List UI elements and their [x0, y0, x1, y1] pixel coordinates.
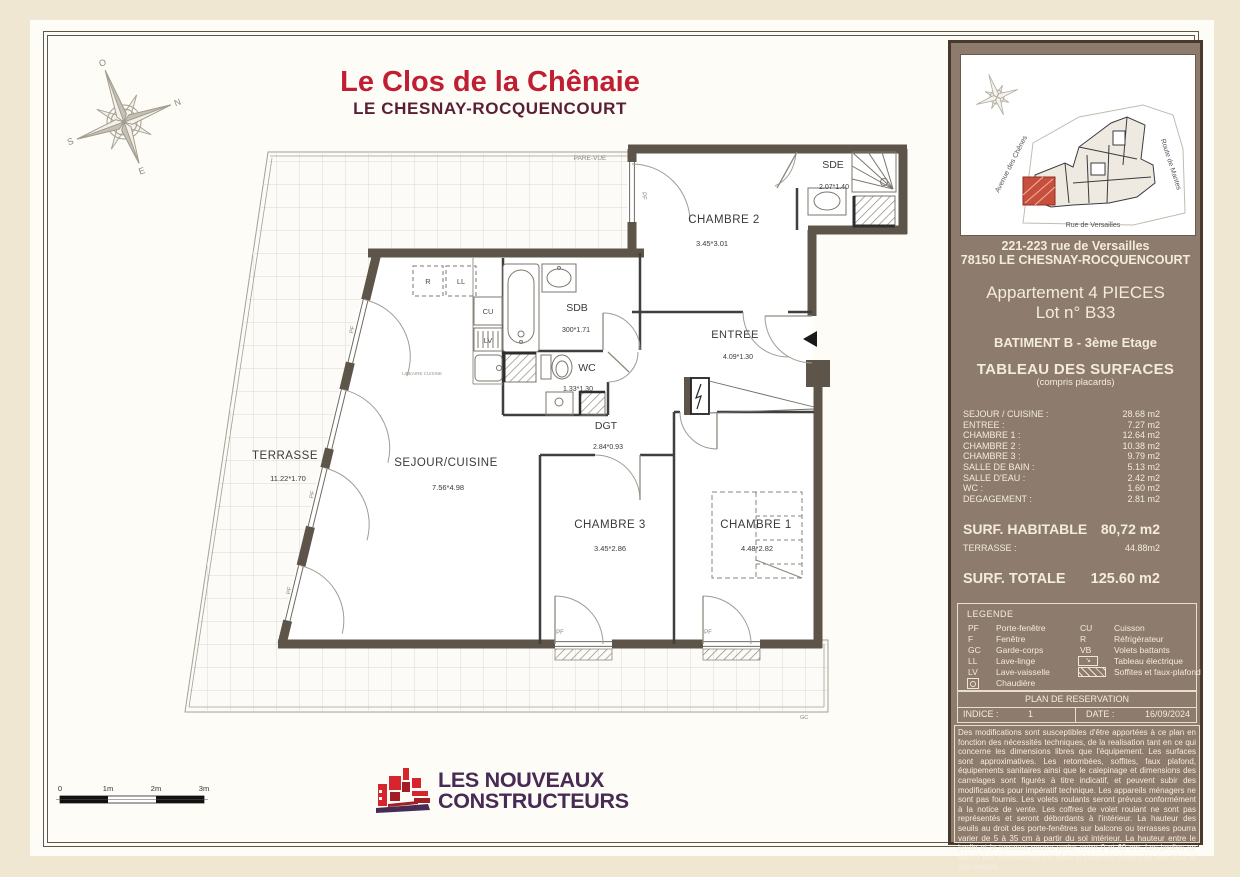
surface-label: DEGAGEMENT : — [963, 494, 1032, 505]
legend-abbr: R — [1080, 634, 1086, 644]
address-line2: 78150 LE CHESNAY-ROCQUENCOURT — [951, 253, 1200, 267]
legend-label: Lave-linge — [996, 656, 1035, 666]
indice-date-row: INDICE : 1 DATE : 16/09/2024 — [957, 707, 1197, 723]
legend-label: Porte-fenêtre — [996, 623, 1046, 633]
legend-abbr: GC — [968, 645, 981, 655]
surface-row: WC :1.60 m2 — [963, 483, 1160, 494]
date-cell: DATE : 16/09/2024 — [1076, 707, 1196, 722]
legend-abbr: F — [968, 634, 973, 644]
habitable-row: SURF. HABITABLE 80,72 m2 — [963, 521, 1160, 537]
room-dims-entree: 4.09*1.30 — [723, 354, 753, 361]
scale-3m: 3m — [199, 784, 209, 793]
legend-label: Chaudière — [996, 678, 1035, 688]
terrasse-row: TERRASSE : 44.88m2 — [963, 543, 1160, 553]
apartment-type: Appartement 4 PIECES — [951, 283, 1200, 303]
kitchen-note: LINEAIRE CUISINE — [402, 371, 442, 376]
legend-label: Volets battants — [1114, 645, 1170, 655]
habitable-value: 80,72 m2 — [1101, 521, 1160, 537]
surface-row: CHAMBRE 1 :12.64 m2 — [963, 430, 1160, 441]
pare-vue-label: PARE-VUE — [574, 155, 607, 162]
compass-east-label: E — [137, 165, 146, 176]
terrasse-label: TERRASSE : — [963, 543, 1017, 553]
legend-abbr: LV — [968, 667, 978, 677]
habitable-label: SURF. HABITABLE — [963, 521, 1087, 537]
building-floor: BATIMENT B - 3ème Etage — [951, 335, 1200, 350]
surface-label: ENTREE : — [963, 420, 1005, 431]
room-label-entree: ENTREE — [711, 329, 759, 341]
room-label-terrasse: TERRASSE — [252, 450, 318, 462]
totale-label: SURF. TOTALE — [963, 571, 1066, 587]
surface-value: 5.13 m2 — [1127, 462, 1160, 473]
room-dims-wc: 1.33*1.30 — [563, 386, 593, 393]
surface-value: 28.68 m2 — [1122, 409, 1160, 420]
boiler-icon — [967, 678, 979, 689]
logo-line1: LES NOUVEAUX — [438, 770, 629, 791]
room-dims-dgt: 2.84*0.93 — [593, 444, 623, 451]
surface-label: CHAMBRE 3 : — [963, 451, 1021, 462]
legend-label: Réfrigérateur — [1114, 634, 1164, 644]
pf-label-2: PF — [704, 630, 712, 636]
indice-value: 1 — [1028, 709, 1033, 719]
electrical-panel-icon: ↘ — [1078, 656, 1098, 666]
hatch-icon — [1078, 667, 1106, 677]
surface-value: 9.79 m2 — [1127, 451, 1160, 462]
surface-label: WC : — [963, 483, 983, 494]
surface-row: SEJOUR / CUISINE :28.68 m2 — [963, 409, 1160, 420]
cooktop-label: CU — [483, 307, 494, 316]
room-dims-sde: 2.07*1.40 — [819, 184, 849, 191]
apartment-block: Appartement 4 PIECES Lot n° B33 — [951, 283, 1200, 323]
surfaces-subtitle: (compris placards) — [951, 377, 1200, 388]
room-label-chambre1: CHAMBRE 1 — [720, 519, 792, 531]
surface-row: SALLE DE BAIN :5.13 m2 — [963, 462, 1160, 473]
room-dims-sejour: 7.56*4.98 — [432, 483, 464, 492]
highlighted-unit — [1023, 177, 1055, 205]
room-label-dgt: DGT — [595, 420, 618, 432]
surface-value: 2.42 m2 — [1127, 473, 1160, 484]
fridge-label: R — [425, 277, 431, 286]
surface-value: 1.60 m2 — [1127, 483, 1160, 494]
lot-number: Lot n° B33 — [951, 303, 1200, 323]
surface-value: 2.81 m2 — [1127, 494, 1160, 505]
disclaimer-text: Des modifications sont susceptibles d'êt… — [954, 725, 1200, 843]
dishwasher-label: LV — [484, 336, 493, 345]
scale-0: 0 — [58, 784, 62, 793]
indice-label: INDICE : — [963, 709, 999, 719]
legend-label: Cuisson — [1114, 623, 1145, 633]
room-dims-chambre1: 4.48*2.82 — [741, 544, 773, 553]
builder-logo-text: LES NOUVEAUX CONSTRUCTEURS — [438, 770, 629, 812]
indice-cell: INDICE : 1 — [958, 707, 1076, 722]
room-label-wc: WC — [578, 362, 596, 374]
surface-label: SALLE DE BAIN : — [963, 462, 1035, 473]
compass-south-label: S — [66, 136, 75, 147]
legend-abbr: VB — [1080, 645, 1091, 655]
compass-west-label: O — [97, 57, 107, 69]
legend-abbr: LL — [968, 656, 977, 666]
totale-value: 125.60 m2 — [1091, 571, 1160, 587]
room-label-chambre3: CHAMBRE 3 — [574, 519, 646, 531]
scale-2m: 2m — [151, 784, 161, 793]
terrasse-value: 44.88m2 — [1125, 543, 1160, 553]
wall-step — [806, 360, 830, 387]
legend-title: LEGENDE — [967, 609, 1014, 619]
surfaces-title: TABLEAU DES SURFACES — [951, 361, 1200, 378]
room-dims-terrasse: 11.22*1.70 — [270, 474, 306, 483]
surface-label: SALLE D'EAU : — [963, 473, 1025, 484]
room-dims-sdb: 300*1.71 — [562, 327, 590, 334]
builder-logo: LES NOUVEAUX CONSTRUCTEURS — [374, 766, 629, 816]
washer-label: LL — [457, 277, 465, 286]
legend-abbr: CU — [1080, 623, 1092, 633]
street-route-de-mantes: Route de Mantes — [1159, 138, 1182, 191]
legend-label: Tableau électrique — [1114, 656, 1183, 666]
street-rue-de-versailles: Rue de Versailles — [1066, 222, 1121, 229]
info-sidebar: Avenue des Chênes Route de Mantes Rue de… — [948, 40, 1203, 845]
builder-logo-mark-icon — [374, 766, 432, 816]
mini-compass-icon — [968, 67, 1024, 122]
scale-1m: 1m — [103, 784, 113, 793]
legend-box: LEGENDE PF Porte-fenêtre F Fenêtre GC Ga… — [957, 603, 1197, 691]
logo-line2: CONSTRUCTEURS — [438, 791, 629, 812]
surface-label: CHAMBRE 1 : — [963, 430, 1021, 441]
legend-label: Fenêtre — [996, 634, 1025, 644]
room-label-sejour: SEJOUR/CUISINE — [394, 457, 498, 469]
legend-label: Lave-vaisselle — [996, 667, 1050, 677]
date-value: 16/09/2024 — [1145, 709, 1190, 719]
surface-row: DEGAGEMENT :2.81 m2 — [963, 494, 1160, 505]
room-label-sde: SDE — [822, 159, 844, 171]
surface-value: 7.27 m2 — [1127, 420, 1160, 431]
pf-label-1: PF — [556, 630, 564, 636]
site-map: Avenue des Chênes Route de Mantes Rue de… — [960, 54, 1196, 236]
gc-label: GC — [800, 715, 808, 721]
surface-value: 10.38 m2 — [1122, 441, 1160, 452]
room-dims-chambre2: 3.45*3.01 — [696, 239, 728, 248]
surface-row: SALLE D'EAU :2.42 m2 — [963, 473, 1160, 484]
room-dims-chambre3: 3.45*2.86 — [594, 544, 626, 553]
legend-label: Garde-corps — [996, 645, 1043, 655]
legend-label: Soffites et faux-plafond — [1114, 667, 1201, 677]
reservation-bar: PLAN DE RESERVATION — [957, 691, 1197, 708]
compass-north-label: N — [173, 97, 183, 109]
pf-label-6: PF — [640, 192, 646, 200]
chambre2-window — [628, 162, 637, 222]
room-label-chambre2: CHAMBRE 2 — [688, 214, 760, 226]
scale-bar: 0 1m 2m 3m — [56, 784, 209, 803]
totale-row: SURF. TOTALE 125.60 m2 — [963, 571, 1160, 587]
address-block: 221-223 rue de Versailles 78150 LE CHESN… — [951, 239, 1200, 267]
address-line1: 221-223 rue de Versailles — [951, 239, 1200, 253]
compass-rose-icon: O N E S — [44, 37, 200, 196]
surface-value: 12.64 m2 — [1122, 430, 1160, 441]
surfaces-table: SEJOUR / CUISINE :28.68 m2 ENTREE :7.27 … — [963, 409, 1160, 504]
surface-label: SEJOUR / CUISINE : — [963, 409, 1049, 420]
date-label: DATE : — [1086, 709, 1114, 719]
room-label-sdb: SDB — [566, 302, 588, 314]
surface-row: CHAMBRE 2 :10.38 m2 — [963, 441, 1160, 452]
plan-sheet: Le Clos de la Chênaie LE CHESNAY-ROCQUEN… — [0, 0, 1240, 877]
surface-row: CHAMBRE 3 :9.79 m2 — [963, 451, 1160, 462]
legend-abbr: PF — [968, 623, 979, 633]
surface-row: ENTREE :7.27 m2 — [963, 420, 1160, 431]
surface-label: CHAMBRE 2 : — [963, 441, 1021, 452]
